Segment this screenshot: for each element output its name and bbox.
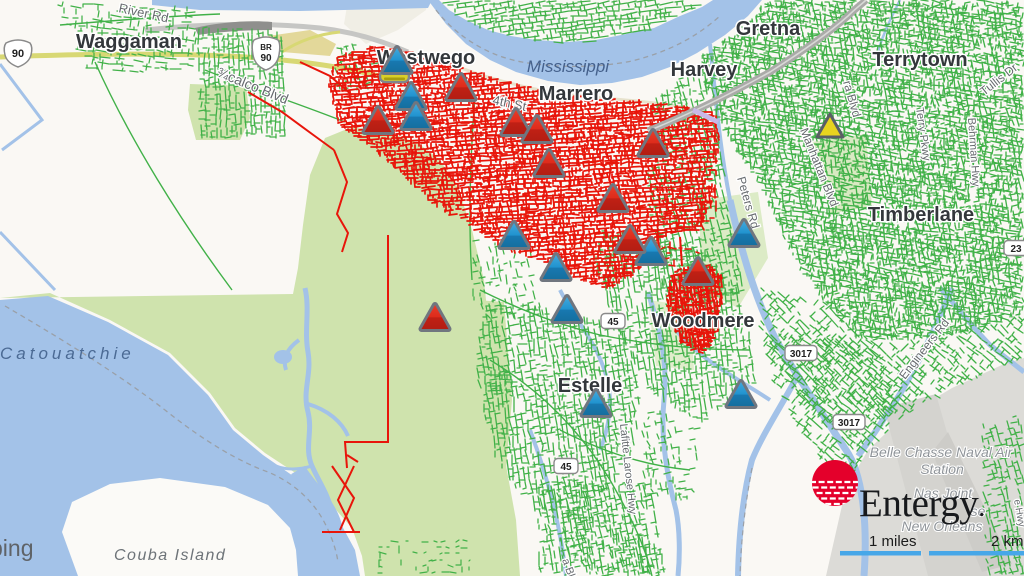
svg-text:BR: BR [260,43,272,52]
svg-text:Gretna: Gretna [736,18,801,40]
svg-text:Couba Island: Couba Island [114,547,226,564]
svg-text:Timberlane: Timberlane [868,204,974,226]
svg-text:bing: bing [0,535,33,561]
svg-text:1 miles: 1 miles [869,533,917,550]
svg-text:3017: 3017 [790,349,813,360]
svg-text:Mississippi: Mississippi [527,57,610,76]
svg-text:3017: 3017 [838,418,861,429]
svg-text:Belle Chasse Naval Air: Belle Chasse Naval Air [870,444,1014,460]
svg-text:45: 45 [607,317,619,328]
svg-text:Marrero: Marrero [539,83,613,105]
svg-text:Catouatchie: Catouatchie [0,344,135,363]
svg-text:Terrytown: Terrytown [872,49,967,71]
svg-text:Harvey: Harvey [671,59,739,81]
svg-text:23: 23 [1010,244,1022,255]
svg-text:Entergy.: Entergy. [859,482,985,525]
svg-text:Station: Station [920,461,964,477]
svg-text:45: 45 [560,462,572,473]
svg-text:Waggaman: Waggaman [76,31,182,53]
svg-text:2 km: 2 km [991,533,1024,550]
svg-text:90: 90 [260,53,272,64]
svg-text:90: 90 [12,48,24,60]
svg-text:Woodmere: Woodmere [652,310,755,332]
svg-text:Estelle: Estelle [558,375,622,397]
